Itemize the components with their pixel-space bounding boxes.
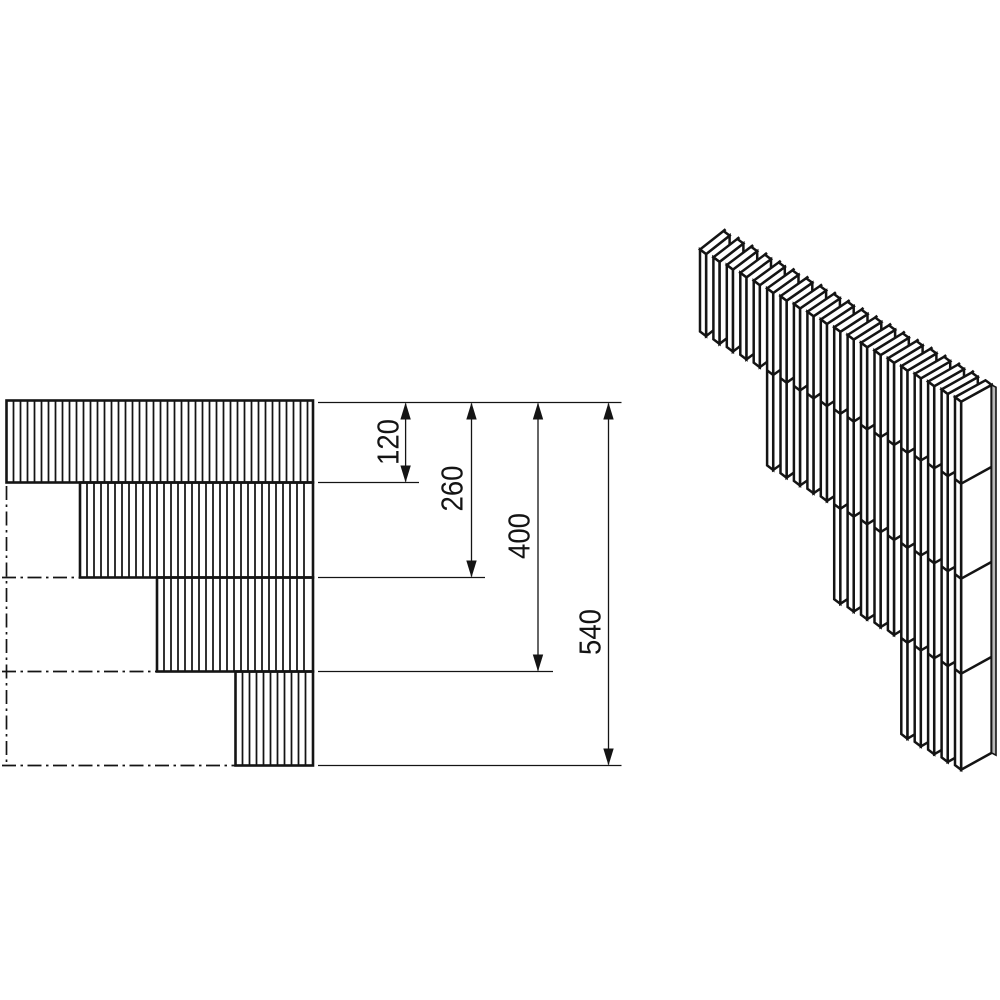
svg-text:260: 260	[436, 466, 470, 512]
svg-text:120: 120	[372, 419, 406, 465]
svg-text:540: 540	[574, 609, 608, 655]
svg-text:400: 400	[503, 513, 537, 559]
